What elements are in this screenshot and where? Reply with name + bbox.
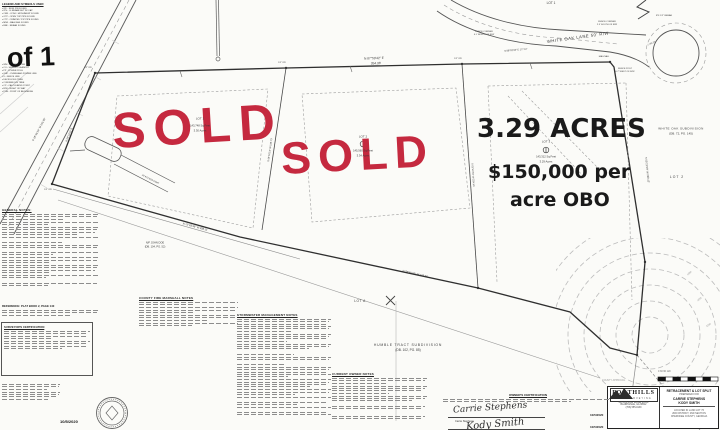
fine-print-paragraph <box>332 396 427 402</box>
notes-left <box>2 214 99 288</box>
title-block-project-cell: RETRACEMENT & LOT SPLIT PREPARED FOR CAR… <box>660 387 718 428</box>
fine-print-paragraph <box>2 392 60 400</box>
fence-label-3b: 0.7' WEST OF R/W <box>616 71 635 73</box>
adjoiner-lot-a: LOT A <box>354 300 365 304</box>
adjoiner-whiteoak-sub-1: WHITE OAK SUBDIVISION <box>658 127 703 130</box>
adjoiner-sw-2: (DB. 104, PG. 52) <box>145 247 166 250</box>
owner-cert-body <box>443 399 611 404</box>
fine-print-paragraph <box>237 397 331 405</box>
legend-symbols: LEGEND AND SYMBOLS USED IPF - IRON PIN F… <box>2 2 72 28</box>
lot1-acres: 3.30 Acres <box>194 130 207 133</box>
fine-print-paragraph <box>2 275 99 278</box>
fine-print-paragraph <box>332 386 427 394</box>
fine-print-paragraph <box>332 404 427 412</box>
bearing-top-2: 354.38' <box>371 62 381 66</box>
ipf-bulb: IPF 1/2" REBAR <box>656 15 672 17</box>
stormwater-notes-header: STORMWATER MANAGEMENT NOTES <box>237 313 298 317</box>
signature-date-1: 10/5/2020 <box>590 413 603 417</box>
acreage-label: 3.29 ACRES <box>477 116 646 142</box>
owner-notes-header: CURRENT OWNER NOTES <box>332 372 374 376</box>
fine-print-paragraph <box>2 257 99 263</box>
fine-print-paragraph <box>237 389 331 395</box>
fine-print-paragraph <box>237 352 331 355</box>
fine-print-paragraph <box>2 227 99 235</box>
pin-nw: 1/2" IPF <box>84 67 92 69</box>
county-approval-label: COUNTY APPROVAL <box>602 380 625 383</box>
lot2-name: LOT 2 <box>359 135 367 138</box>
scale-bar <box>658 377 718 381</box>
fine-print-paragraph <box>139 315 238 321</box>
adjoiner-lot2: LOT 2 <box>670 176 684 180</box>
fine-print-paragraph <box>2 214 99 220</box>
fine-print-paragraph <box>139 302 238 305</box>
fine-print-paragraph <box>443 399 611 402</box>
fire-marshall-notes-header: COUNTY FIRE MARSHALL NOTES <box>139 296 193 300</box>
pin-top-3: MAG NAIL <box>599 56 609 58</box>
fence-label-1b: 4.1' NORTH OF R/W <box>474 34 494 36</box>
pin-sw: 1/2" IPF <box>44 189 52 191</box>
fine-print-paragraph <box>332 414 427 422</box>
legend-item-6: RBF - REBAR FOUND <box>2 25 72 28</box>
legend-title: LEGEND AND SYMBOLS USED <box>2 2 72 6</box>
client-name-2: KODY SMITH <box>678 401 699 405</box>
adjoiner-lot1-top: LOT 1 <box>547 2 556 6</box>
fine-print-paragraph <box>2 245 99 255</box>
fine-print-paragraph <box>237 379 331 387</box>
fine-print-paragraph <box>4 331 90 339</box>
fine-print-paragraph <box>2 222 99 225</box>
notes-fire <box>139 302 238 328</box>
signature-date-2: 10/5/2020 <box>590 425 603 429</box>
title-block: FOOTHILLS LAND SURVEYING 216 ROLLING RID… <box>607 386 719 429</box>
notes-owner <box>332 378 427 424</box>
title-block-logo-cell: FOOTHILLS LAND SURVEYING 216 ROLLING RID… <box>608 387 660 428</box>
reference-plat-line: REFERENCE: PLAT BOOK 2, PAGE 140 <box>2 304 54 308</box>
notes-left-3 <box>2 384 60 402</box>
scale-bar-ticks: 0 30 60 120 <box>658 371 671 374</box>
owner-certification-block: OWNER'S CERTIFICATION <box>443 393 613 399</box>
seal-date: 10/5/2020 <box>60 419 78 424</box>
match-line-symbol <box>637 0 649 19</box>
title-block-divider <box>663 406 715 407</box>
fine-print-paragraph <box>237 344 331 350</box>
plat-document: LEGEND AND SYMBOLS USED IPF - IRON PIN F… <box>0 0 720 430</box>
power-line <box>216 0 220 61</box>
surveyor-seal <box>97 398 128 429</box>
signature-line-2 <box>448 429 545 430</box>
lot1-name: LOT 1 <box>196 117 204 120</box>
fine-print-paragraph <box>237 407 331 417</box>
company-logo: FOOTHILLS LAND SURVEYING <box>610 388 658 402</box>
lot2-acres: 3.34 Acres <box>357 155 370 158</box>
adjoiner-whiteoak-sub-2: (DB. 72, PG. 145) <box>669 132 693 135</box>
fine-print-paragraph <box>139 323 238 326</box>
project-type: RETRACEMENT & LOT SPLIT <box>667 389 712 393</box>
fine-print-paragraph <box>2 310 99 316</box>
price-line-1: $150,000 per <box>488 163 630 182</box>
fine-print-paragraph <box>2 265 99 273</box>
fine-print-paragraph <box>237 334 331 342</box>
legend-item-b-9: POB - POINT OF BEGINNING <box>2 91 72 94</box>
fine-print-paragraph <box>2 281 99 287</box>
surveyor-certification-box: SURVEYOR'S CERTIFICATION <box>1 322 93 376</box>
bearing-div2: S 03°40'55" W 224.55' <box>470 163 474 187</box>
fine-print-paragraph <box>237 319 331 332</box>
general-notes-header: GENERAL NOTES: <box>2 208 32 212</box>
pin-top-2: 1/2" IPF <box>454 58 462 60</box>
adjoiner-humble-2: (DB. 102, PG. 85) <box>395 349 420 353</box>
fine-print-paragraph <box>237 367 331 377</box>
notes-left-2 <box>2 310 99 318</box>
fine-print-paragraph <box>139 307 238 313</box>
company-phone: (706) 555-0139 <box>626 407 642 410</box>
notes-storm <box>237 319 331 420</box>
fine-print-paragraph <box>237 357 331 365</box>
fine-print-paragraph <box>2 384 60 390</box>
fine-print-paragraph <box>2 237 99 243</box>
fine-print-paragraph <box>4 341 90 349</box>
location-line-3: CHEROKEE COUNTY, GEORGIA <box>671 415 707 418</box>
fine-print-paragraph <box>332 378 427 384</box>
plat-linework <box>0 0 720 430</box>
lot3-acres: 3.29 Acres <box>540 161 553 164</box>
mountains-icon <box>608 387 634 400</box>
price-line-2: acre OBO <box>510 191 610 210</box>
fence-label-2b: 2.3' SOUTH OF R/W <box>597 24 617 26</box>
pin-top-1: 1/2" IPF <box>278 62 286 64</box>
surveyor-certification-header: SURVEYOR'S CERTIFICATION <box>4 325 90 329</box>
sheet-number-label: of 1 <box>6 41 55 74</box>
lot3-name: LOT 3 <box>542 140 550 143</box>
owner-certification-header: OWNER'S CERTIFICATION <box>443 393 613 397</box>
